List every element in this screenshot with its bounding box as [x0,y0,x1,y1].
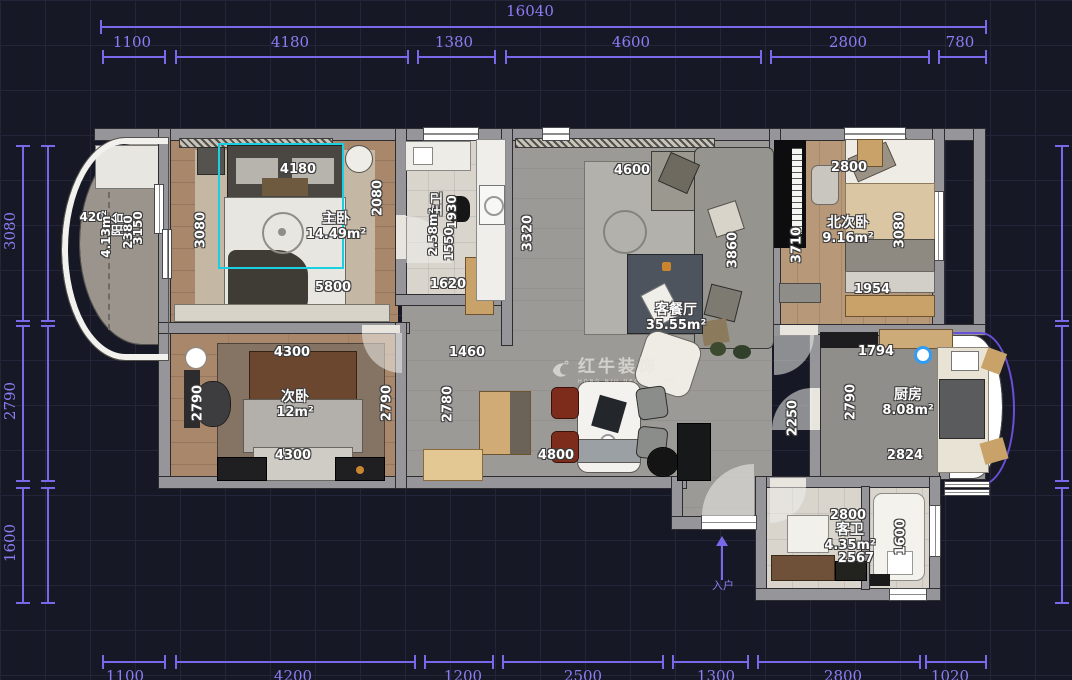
wall-entry-bottom [672,517,706,529]
door-north-opening[interactable] [780,325,818,335]
kitchen-dim-top: 1794 [858,344,894,359]
entry-cabinet-dark [678,424,710,480]
camera-marker[interactable] [914,346,932,364]
room-label-kitchen: 厨房 8.08m² [882,388,933,418]
entry-label: 入户 [712,577,734,593]
master-nightstand-right[interactable] [346,146,372,172]
guestbath-vanity[interactable] [772,556,834,580]
north-dim-bottom: 1954 [854,282,890,297]
window-bath-top [424,128,478,140]
watermark-subtitle: HONG NIU DECORATION [578,379,676,385]
room-label-guestbath: 客卫 4.35m² [824,523,875,553]
ac-platform-stripe-1 [945,482,989,487]
guestbath-dim-right: 1600 [894,519,909,555]
master-dim-bottom: 5800 [315,280,351,295]
dim-top-2: 4180 [271,33,309,51]
master-lowboard[interactable] [175,305,389,321]
hall-dim-width: 3320 [521,215,536,251]
dining-runner [578,440,640,462]
master-dim-top: 4180 [280,162,316,177]
north-dim-left: 3710 [790,227,805,263]
washing-machine-drum [484,196,504,216]
second-table-lamp [186,348,206,368]
north-dim-right: 3080 [893,212,908,248]
guestbath-accessory [870,574,890,586]
watermark: 红牛装饰 HONG NIU DECORATION [550,352,676,385]
masterbath-dim-b: 1550 [442,227,456,260]
ac-platform-stripe-2 [945,490,989,495]
master-dim-right: 2080 [371,180,386,216]
room-label-master: 主卧 14.49m² [306,212,366,242]
floorplan-canvas: 16040 1100 4180 1380 4600 2800 780 3080 … [0,0,1072,680]
north-bench[interactable] [846,296,934,316]
dim-top-1: 1100 [113,33,151,51]
dim-bottom-5: 1300 [697,667,735,680]
dim-top-5: 2800 [829,33,867,51]
hall-dim-left: 2780 [441,386,456,422]
north-cabinet [780,284,820,302]
second-dim-bottom: 4300 [275,448,311,463]
window-living-top [543,128,569,140]
hall-dim-closet: 1620 [430,277,466,292]
piano-keys [792,148,802,234]
dim-bottom-2: 4200 [274,667,312,680]
living-dim-sofa: 3860 [726,232,741,268]
dim-bottom-3: 1200 [444,667,482,680]
dim-bottom-4: 2500 [564,667,602,680]
balcony-area: 4.13m² [99,210,113,257]
guestbath-dim-top: 2800 [830,508,866,523]
master-dim-left: 3080 [194,212,209,248]
room-label-second: 次卧 12m² [276,390,313,420]
hall-cabinet-divider [510,392,530,454]
plant-1 [710,342,726,356]
hall-dim-bottom: 4800 [538,448,574,463]
kitchen-dim-left: 2790 [844,384,859,420]
living-dim-top: 4600 [614,163,650,178]
entry-door[interactable] [702,516,756,529]
north-dim-top: 2800 [831,160,867,175]
wall-guestbath-left [756,477,766,600]
curtain-living [516,139,714,147]
hall-dim-east: 2250 [786,400,801,436]
bath-sink [414,148,432,164]
dim-top-4: 4600 [612,33,650,51]
window-guestbath-bottom [890,589,926,600]
dining-chair-gray-1[interactable] [636,386,668,420]
dim-bottom-1: 1100 [106,667,144,680]
coffee-table-decor [662,262,671,271]
entry-arrow [721,538,723,580]
office-chair[interactable] [648,448,678,476]
dim-bottom-7: 1020 [931,667,969,680]
guestbath-shower-tray [788,516,828,552]
dining-chair-red-1[interactable] [552,388,578,418]
watermark-bull-logo [550,358,572,380]
second-dim-right: 2790 [380,385,395,421]
plant-2 [733,345,751,359]
dim-top-6: 780 [946,33,975,51]
kitchen-stove[interactable] [940,380,984,438]
second-dresser-left[interactable] [218,458,266,480]
dim-line-top-total [100,20,987,34]
room-label-living: 客餐厅 35.55m² [646,303,706,333]
dim-bottom-6: 2800 [824,667,862,680]
guestbath-toilet[interactable] [888,552,912,574]
second-dim-left: 2790 [191,385,206,421]
room-label-north: 北次卧 9.16m² [822,216,873,246]
second-dim-top: 4300 [274,345,310,360]
masterbath-area: 2.58m² [426,208,440,255]
hall-cabinet-wood-2 [424,450,482,480]
dim-top-3: 1380 [435,33,473,51]
watermark-name: 红牛装饰 [578,352,676,377]
second-dresser-knob [356,466,364,474]
door-guestbath-opening[interactable] [770,478,806,487]
kitchen-sink [952,352,978,370]
dim-top-total: 16040 [506,2,554,20]
wall-right-upper [974,129,985,335]
window-guestbath-right [930,506,940,556]
guestbath-dim-bottom: 2567 [838,551,874,566]
kitchen-dim-bottom: 2824 [887,448,923,463]
masterbath-dim-a: 1930 [445,195,459,228]
hall-dim-mid: 1460 [449,345,485,360]
door-masterbath-opening[interactable] [396,215,406,259]
living-round-chair[interactable] [603,210,647,254]
door-second-opening[interactable] [362,325,400,333]
window-north-top [845,128,905,140]
window-north-right [934,192,943,260]
